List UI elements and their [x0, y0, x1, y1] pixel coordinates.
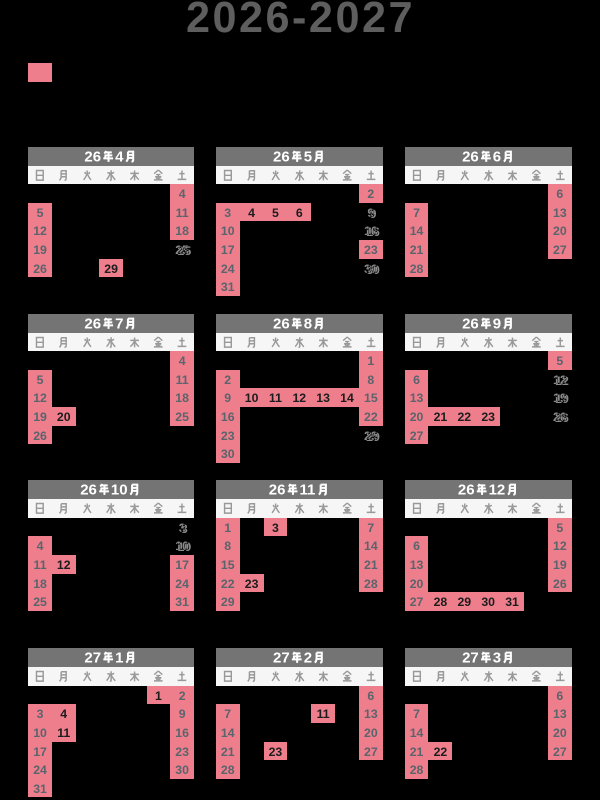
svg-text:26: 26 [462, 315, 479, 332]
svg-text:26: 26 [85, 148, 102, 165]
svg-text:26: 26 [80, 482, 97, 499]
svg-text:27: 27 [85, 650, 102, 667]
svg-text:27: 27 [462, 650, 479, 667]
svg-text:12: 12 [488, 482, 505, 499]
svg-text:1: 1 [115, 650, 123, 667]
svg-text:2: 2 [303, 650, 311, 667]
svg-text:26: 26 [273, 315, 290, 332]
svg-text:26: 26 [269, 482, 286, 499]
svg-text:4: 4 [115, 148, 124, 165]
svg-text:26: 26 [85, 315, 102, 332]
svg-text:26: 26 [462, 148, 479, 165]
svg-text:27: 27 [273, 650, 290, 667]
svg-text:5: 5 [303, 148, 311, 165]
svg-text:11: 11 [299, 482, 315, 499]
svg-text:3: 3 [492, 650, 500, 667]
svg-text:26: 26 [273, 148, 290, 165]
svg-text:8: 8 [303, 315, 311, 332]
svg-text:10: 10 [111, 482, 128, 499]
svg-text:6: 6 [492, 148, 500, 165]
svg-text:9: 9 [492, 315, 500, 332]
svg-text:26: 26 [457, 482, 474, 499]
svg-text:7: 7 [115, 315, 123, 332]
